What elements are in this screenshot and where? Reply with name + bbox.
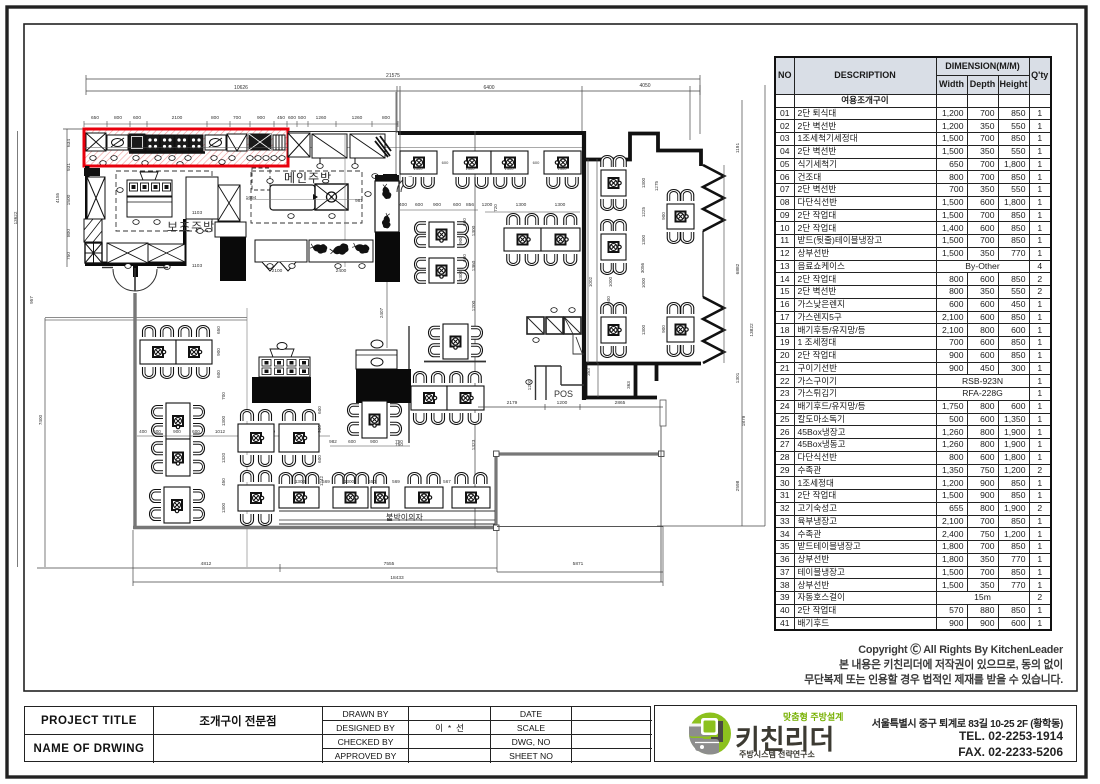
svg-text:POS: POS (554, 389, 573, 399)
svg-text:18433: 18433 (390, 575, 404, 581)
svg-text:600: 600 (288, 115, 296, 121)
svg-text:3056: 3056 (640, 262, 645, 273)
svg-text:메인주방: 메인주방 (284, 171, 332, 185)
svg-text:900: 900 (257, 115, 265, 121)
svg-text:2407: 2407 (379, 307, 384, 318)
svg-text:900: 900 (661, 212, 666, 220)
svg-text:600: 600 (192, 429, 200, 434)
svg-text:900: 900 (173, 429, 181, 434)
svg-text:6882: 6882 (735, 263, 741, 274)
svg-text:634: 634 (66, 139, 72, 147)
svg-text:800: 800 (66, 229, 72, 237)
svg-text:400: 400 (139, 429, 147, 434)
svg-text:800: 800 (382, 115, 390, 121)
svg-text:13822: 13822 (749, 323, 755, 337)
svg-text:21575: 21575 (386, 73, 400, 79)
svg-text:1300: 1300 (471, 225, 477, 236)
svg-text:600: 600 (533, 160, 540, 165)
svg-text:1300: 1300 (466, 166, 476, 171)
svg-text:7400: 7400 (38, 414, 43, 425)
svg-text:650: 650 (91, 115, 99, 121)
svg-text:900: 900 (216, 348, 221, 356)
svg-text:1323: 1323 (471, 439, 477, 450)
svg-text:720: 720 (493, 204, 498, 212)
svg-text:1879: 1879 (741, 415, 747, 426)
svg-text:1320: 1320 (221, 452, 226, 463)
svg-text:982: 982 (329, 439, 337, 444)
svg-text:600: 600 (606, 296, 611, 304)
svg-text:600: 600 (133, 115, 141, 121)
svg-text:931: 931 (66, 163, 72, 171)
svg-text:1191: 1191 (735, 143, 741, 154)
svg-text:1200: 1200 (482, 202, 493, 208)
svg-text:1000: 1000 (608, 276, 613, 287)
svg-text:700: 700 (233, 115, 241, 121)
svg-text:353: 353 (586, 368, 591, 376)
svg-text:1300: 1300 (505, 166, 515, 171)
svg-text:856: 856 (466, 202, 474, 208)
svg-text:900: 900 (317, 425, 322, 433)
svg-text:569: 569 (322, 479, 330, 484)
svg-text:1300: 1300 (295, 479, 306, 484)
svg-text:2100: 2100 (272, 268, 283, 274)
svg-text:650: 650 (216, 326, 221, 334)
svg-text:800: 800 (211, 115, 219, 121)
svg-text:750: 750 (66, 252, 72, 260)
svg-text:700: 700 (221, 392, 226, 400)
svg-text:1300: 1300 (555, 202, 566, 208)
svg-text:2598: 2598 (735, 480, 741, 491)
svg-text:600: 600 (153, 429, 161, 434)
svg-text:1275: 1275 (654, 180, 659, 191)
svg-text:붙박이의자: 붙박이의자 (386, 512, 423, 522)
svg-text:600: 600 (453, 202, 461, 208)
svg-text:750: 750 (395, 439, 403, 444)
svg-text:1300: 1300 (344, 479, 355, 484)
svg-text:1200: 1200 (527, 379, 533, 390)
svg-text:4812: 4812 (201, 561, 212, 567)
svg-text:569: 569 (392, 479, 400, 484)
svg-text:2179: 2179 (507, 400, 518, 406)
svg-text:900: 900 (433, 202, 441, 208)
svg-text:1103: 1103 (192, 263, 203, 269)
svg-text:6400: 6400 (483, 85, 494, 91)
svg-text:800: 800 (114, 115, 122, 121)
svg-text:1260: 1260 (316, 115, 327, 121)
svg-text:900: 900 (458, 236, 463, 244)
svg-text:1500: 1500 (66, 194, 72, 205)
svg-text:1260: 1260 (352, 115, 363, 121)
svg-text:7555: 7555 (384, 561, 395, 567)
svg-text:600: 600 (442, 160, 449, 165)
svg-text:1200: 1200 (471, 300, 477, 311)
svg-text:2400: 2400 (336, 268, 347, 274)
svg-text:900: 900 (661, 325, 666, 333)
svg-text:1200: 1200 (557, 400, 568, 406)
svg-text:1225: 1225 (641, 206, 646, 217)
svg-text:600: 600 (317, 406, 322, 414)
svg-text:600: 600 (348, 439, 356, 444)
svg-text:4155: 4155 (55, 192, 60, 203)
svg-text:1300: 1300 (414, 166, 424, 171)
svg-text:1300: 1300 (221, 502, 226, 513)
svg-text:1360: 1360 (471, 260, 477, 271)
svg-text:1012: 1012 (215, 429, 226, 434)
svg-text:600: 600 (216, 370, 221, 378)
svg-text:567: 567 (443, 479, 451, 484)
svg-text:1000: 1000 (641, 277, 646, 288)
svg-text:1300: 1300 (458, 270, 463, 281)
svg-text:600: 600 (317, 455, 322, 463)
svg-text:1300: 1300 (558, 166, 568, 171)
svg-text:1103: 1103 (192, 210, 203, 216)
svg-text:1002: 1002 (588, 276, 593, 287)
svg-text:1300: 1300 (641, 177, 646, 188)
svg-text:450: 450 (221, 478, 226, 486)
svg-text:보조주방: 보조주방 (167, 220, 215, 234)
svg-text:10626: 10626 (234, 85, 248, 91)
svg-text:450: 450 (277, 115, 285, 121)
svg-text:650: 650 (368, 479, 376, 484)
svg-text:600: 600 (415, 202, 423, 208)
svg-text:1694: 1694 (246, 195, 257, 201)
svg-text:981: 981 (355, 198, 363, 203)
svg-text:1300: 1300 (221, 415, 226, 426)
svg-text:500: 500 (298, 115, 306, 121)
svg-text:1300: 1300 (641, 324, 646, 335)
svg-text:400: 400 (399, 202, 407, 208)
svg-text:900: 900 (370, 439, 378, 444)
svg-text:2100: 2100 (172, 115, 183, 121)
svg-text:13622: 13622 (13, 211, 18, 224)
svg-text:600: 600 (462, 254, 467, 262)
svg-text:363: 363 (626, 381, 631, 389)
svg-text:1300: 1300 (641, 234, 646, 245)
svg-text:4050: 4050 (639, 83, 650, 89)
svg-text:600: 600 (462, 218, 467, 226)
svg-text:5871: 5871 (573, 561, 584, 567)
svg-text:2865: 2865 (615, 400, 626, 406)
svg-text:957: 957 (29, 296, 34, 304)
svg-text:1300: 1300 (516, 202, 527, 208)
svg-text:1301: 1301 (735, 372, 741, 383)
